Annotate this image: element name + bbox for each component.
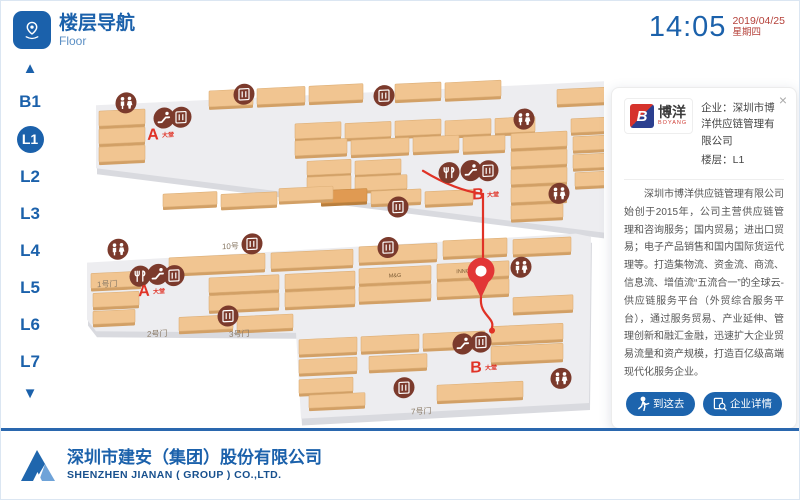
map-store-block[interactable]: [395, 119, 441, 136]
page-subtitle: Floor: [59, 34, 135, 48]
map-store-block[interactable]: [413, 135, 459, 152]
store-label-mg: M&G: [389, 273, 402, 280]
svg-text:A: A: [138, 283, 150, 301]
clock: 14:05 2019/04/25 星期四: [649, 11, 785, 43]
map-store-block[interactable]: [359, 283, 431, 301]
walking-person-icon: [636, 396, 650, 411]
company-floor-line: 楼层：L1: [701, 152, 784, 168]
map-store-block[interactable]: [361, 334, 419, 352]
floor-sidebar: ▲ B1 L1 L2 L3 L4 L5 L6 L7 ▼: [1, 59, 59, 402]
map-store-block[interactable]: [463, 135, 505, 152]
map-store-block[interactable]: [295, 122, 341, 139]
map-store-block[interactable]: [369, 354, 427, 371]
map-store-block[interactable]: [99, 127, 145, 144]
map-store-block[interactable]: [257, 86, 305, 104]
floor-map: A 大堂 B 大堂 A 大堂 B 大堂 1号门 2号门 3号门 7号门 10号 …: [59, 25, 604, 451]
company-logo: B 博洋 BOYANG: [624, 98, 693, 134]
map-store-block[interactable]: [395, 82, 441, 100]
floor-item-l4[interactable]: L4: [17, 238, 43, 264]
map-store-block[interactable]: [511, 203, 563, 219]
map-store-block[interactable]: [425, 189, 473, 204]
svg-text:A: A: [147, 126, 159, 144]
map-store-block[interactable]: [573, 153, 604, 169]
restroom-icon: [108, 238, 129, 260]
gate-7-label: 7号门: [411, 405, 431, 416]
map-store-block[interactable]: [237, 314, 293, 331]
map-store-block[interactable]: [309, 393, 365, 409]
map-store-block[interactable]: [511, 167, 567, 185]
logo-cn-text: 博洋: [658, 105, 687, 120]
time-text: 14:05: [649, 11, 727, 43]
gate-2-label: 2号门: [147, 328, 167, 339]
svg-text:B: B: [472, 186, 484, 204]
panel-divider: [624, 179, 784, 180]
map-store-block[interactable]: [355, 159, 401, 175]
date-text: 2019/04/25: [732, 15, 785, 27]
map-store-block[interactable]: [99, 145, 145, 162]
footer-bar: 深圳市建安（集团）股份有限公司 SHENZHEN JIANAN ( GROUP …: [1, 431, 800, 500]
close-icon[interactable]: ×: [779, 93, 787, 107]
jianan-logo: [17, 445, 59, 485]
footer-brand: 深圳市建安（集团）股份有限公司 SHENZHEN JIANAN ( GROUP …: [17, 445, 322, 485]
map-store-block[interactable]: [345, 121, 391, 138]
company-details-button[interactable]: 企业详情: [703, 392, 782, 416]
map-store-block[interactable]: [285, 271, 355, 289]
map-store-block[interactable]: [513, 237, 571, 255]
floor-item-l3[interactable]: L3: [17, 201, 43, 227]
gate-10-label: 10号: [222, 242, 239, 252]
map-store-block[interactable]: [511, 149, 567, 167]
map-store-block[interactable]: [513, 295, 573, 313]
floor-item-l1[interactable]: L1: [17, 126, 44, 153]
map-store-block[interactable]: [351, 137, 409, 155]
map-store-block[interactable]: [571, 117, 604, 133]
map-store-block[interactable]: [279, 186, 333, 202]
map-store-block[interactable]: [443, 238, 507, 257]
map-store-block[interactable]: [573, 135, 604, 151]
map-store-block[interactable]: [309, 84, 363, 103]
page-title: 楼层导航: [59, 13, 135, 34]
map-store-block[interactable]: [491, 323, 563, 342]
map-store-block[interactable]: [299, 377, 353, 394]
floor-item-b1[interactable]: B1: [17, 89, 43, 115]
map-store-block[interactable]: [575, 171, 604, 187]
floor-map-svg: A 大堂 B 大堂 A 大堂 B 大堂 1号门 2号门 3号门 7号门 10号 …: [59, 25, 604, 451]
floor-item-l5[interactable]: L5: [17, 275, 43, 301]
map-store-block[interactable]: [491, 343, 563, 362]
map-store-block[interactable]: [511, 131, 567, 149]
floor-item-l6[interactable]: L6: [17, 312, 43, 338]
map-store-block[interactable]: [93, 291, 139, 307]
scroll-up-icon[interactable]: ▲: [23, 61, 38, 77]
gate-1-label: 1号门: [97, 278, 117, 289]
map-store-block[interactable]: [299, 337, 357, 355]
logo-en-text: BOYANG: [658, 120, 687, 127]
map-store-block[interactable]: [209, 275, 279, 293]
svg-text:B: B: [470, 359, 482, 377]
company-info-panel: × B 博洋 BOYANG 企业：深圳市博洋供应链管理有限公司 楼层：L1 深圳…: [611, 87, 797, 429]
go-here-button[interactable]: 到这去: [626, 392, 695, 416]
logo-mark: B: [630, 104, 654, 128]
map-store-block[interactable]: [295, 138, 347, 155]
floor-nav-icon: [13, 11, 51, 49]
map-store-block[interactable]: [557, 87, 604, 104]
kiosk-screen: 楼层导航 Floor 14:05 2019/04/25 星期四 ▲ B1 L1 …: [0, 0, 800, 500]
company-name-line: 企业：深圳市博洋供应链管理有限公司: [701, 100, 784, 149]
map-store-block[interactable]: [307, 159, 351, 175]
gate-3-label: 3号门: [229, 328, 249, 339]
footer-company-cn: 深圳市建安（集团）股份有限公司: [67, 448, 322, 468]
company-description: 深圳市博洋供应链管理有限公司始创于2015年，公司主营供应链管理和咨询服务；国内…: [624, 186, 784, 382]
map-store-block[interactable]: [445, 80, 501, 99]
elevator-icon: [242, 233, 263, 255]
scroll-down-icon[interactable]: ▼: [23, 386, 38, 402]
page-header: 楼层导航 Floor: [13, 11, 135, 49]
map-store-block[interactable]: [209, 293, 279, 311]
floor-item-l7[interactable]: L7: [17, 349, 43, 375]
map-store-block[interactable]: [93, 309, 135, 324]
detail-doc-icon: [713, 397, 727, 411]
map-store-block[interactable]: [445, 119, 491, 136]
footer-company-en: SHENZHEN JIANAN ( GROUP ) CO.,LTD.: [67, 468, 322, 482]
map-store-block[interactable]: [163, 192, 217, 208]
map-store-block[interactable]: [285, 289, 355, 307]
map-store-block[interactable]: [299, 357, 357, 374]
weekday-text: 星期四: [732, 27, 785, 39]
map-store-block[interactable]: [221, 192, 277, 208]
floor-item-l2[interactable]: L2: [17, 164, 43, 190]
